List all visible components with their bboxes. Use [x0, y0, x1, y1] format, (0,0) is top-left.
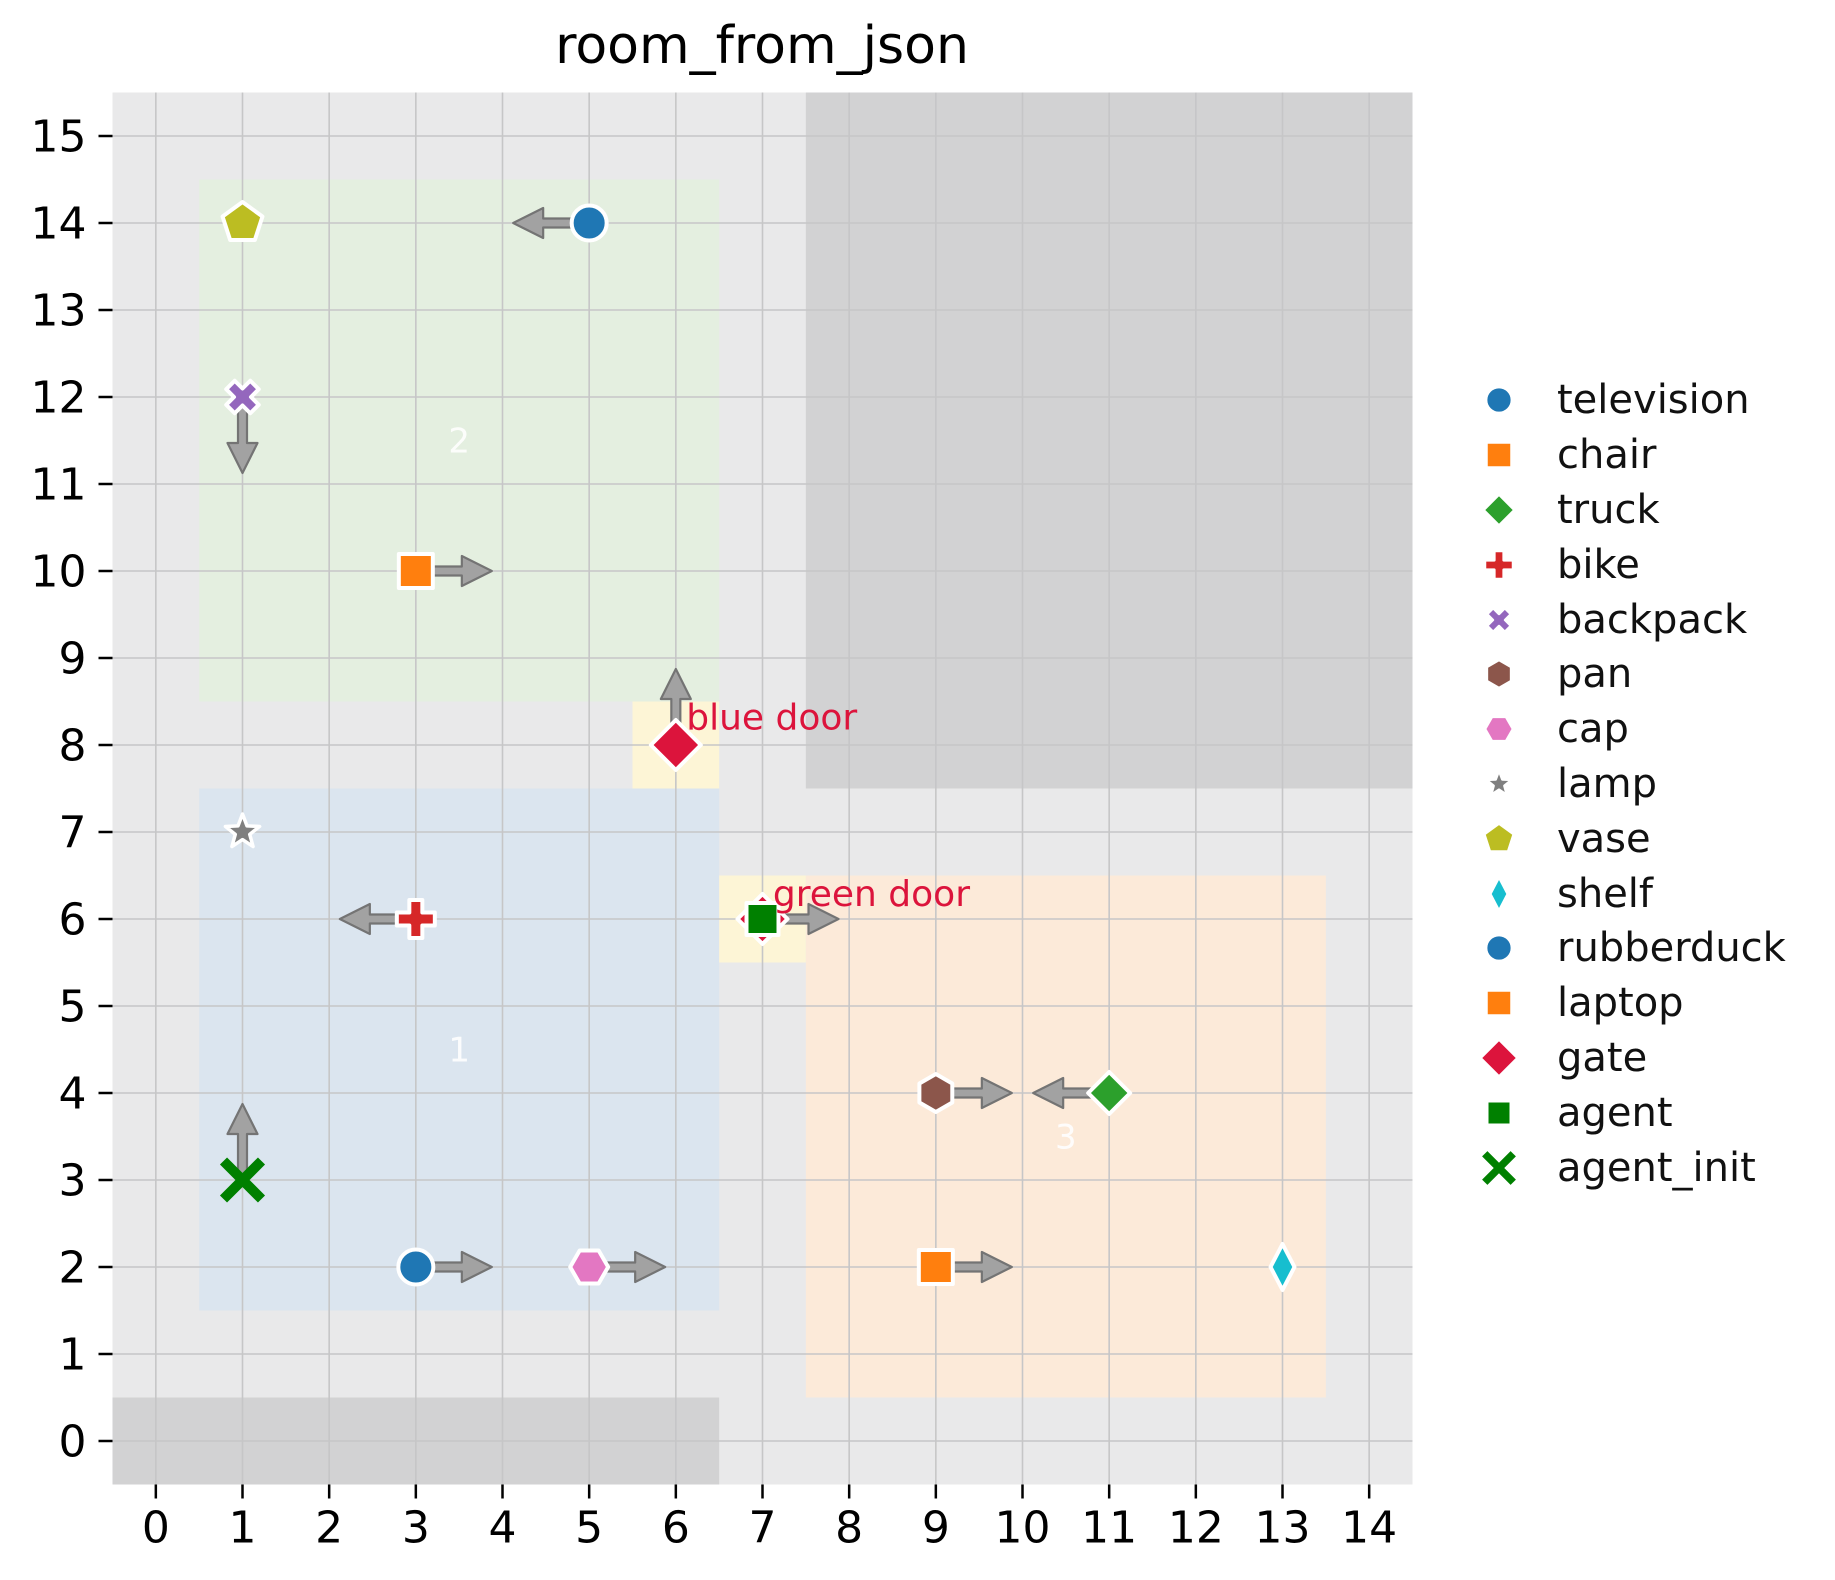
legend-marker-vase	[1484, 823, 1514, 851]
legend-marker-truck	[1483, 494, 1515, 526]
legend-item-chair: chair	[1462, 428, 1786, 483]
legend-marker-laptop	[1486, 990, 1512, 1016]
legend-item-label: cap	[1557, 709, 1629, 749]
svg-text:3: 3	[402, 1503, 430, 1554]
svg-text:11: 11	[1081, 1503, 1137, 1554]
legend-item-television: television	[1462, 373, 1786, 428]
legend-marker-agent-icon	[1462, 1088, 1537, 1138]
svg-text:4: 4	[489, 1503, 517, 1554]
legend-item-label: lamp	[1557, 764, 1657, 804]
svg-text:2: 2	[59, 1242, 87, 1293]
svg-text:4: 4	[59, 1068, 87, 1119]
legend-marker-cap	[1485, 717, 1514, 742]
legend-item-agent: agent	[1462, 1085, 1786, 1140]
legend-item-pan: pan	[1462, 647, 1786, 702]
legend-marker-gate	[1480, 1039, 1518, 1077]
legend-item-label: truck	[1557, 490, 1660, 530]
svg-text:5: 5	[575, 1503, 603, 1554]
legend-item-label: chair	[1557, 435, 1656, 475]
legend-item-laptop: laptop	[1462, 976, 1786, 1031]
marker-rubberduck	[398, 1250, 433, 1285]
legend-item-lamp: lamp	[1462, 757, 1786, 812]
legend-marker-pan	[1487, 660, 1512, 689]
legend-item-shelf: shelf	[1462, 866, 1786, 921]
svg-text:13: 13	[31, 285, 87, 336]
legend-marker-lamp	[1486, 770, 1512, 794]
legend-marker-agent_init-icon	[1462, 1143, 1537, 1193]
legend-item-label: laptop	[1557, 983, 1684, 1023]
legend-item-label: backpack	[1557, 600, 1747, 640]
room-3-label: 3	[1055, 1117, 1077, 1157]
legend-item-agent_init: agent_init	[1462, 1140, 1786, 1195]
svg-text:6: 6	[59, 894, 87, 945]
legend-item-label: pan	[1557, 654, 1632, 694]
legend-marker-chair-icon	[1462, 430, 1537, 480]
legend-item-label: agent	[1557, 1093, 1673, 1133]
legend-item-vase: vase	[1462, 811, 1786, 866]
legend-marker-television-icon	[1462, 375, 1537, 425]
svg-text:10: 10	[31, 546, 87, 597]
marker-cap	[570, 1251, 608, 1284]
door-label-1: green door	[773, 874, 970, 915]
legend-marker-bike	[1485, 551, 1514, 580]
room-1-label: 1	[448, 1030, 470, 1070]
legend-marker-pan-icon	[1462, 649, 1537, 699]
svg-text:5: 5	[59, 981, 87, 1032]
legend-item-label: gate	[1557, 1038, 1647, 1078]
svg-text:12: 12	[31, 372, 87, 423]
legend-item-backpack: backpack	[1462, 592, 1786, 647]
legend-item-rubberduck: rubberduck	[1462, 921, 1786, 976]
svg-text:3: 3	[59, 1155, 87, 1206]
svg-text:6: 6	[662, 1503, 690, 1554]
legend-marker-laptop-icon	[1462, 978, 1537, 1028]
legend-item-gate: gate	[1462, 1031, 1786, 1086]
room-2-label: 2	[448, 421, 470, 461]
marker-laptop	[919, 1250, 953, 1284]
legend-marker-shelf-icon	[1462, 869, 1537, 919]
legend-item-label: shelf	[1557, 874, 1653, 914]
legend-marker-backpack	[1481, 602, 1517, 638]
marker-television	[572, 206, 607, 241]
door-label-0: blue door	[686, 697, 857, 738]
legend-item-bike: bike	[1462, 537, 1786, 592]
svg-text:14: 14	[31, 198, 87, 249]
legend-marker-gate-icon	[1462, 1033, 1537, 1083]
svg-text:14: 14	[1341, 1503, 1397, 1554]
legend-marker-bike-icon	[1462, 540, 1537, 590]
svg-text:12: 12	[1168, 1503, 1224, 1554]
legend-marker-television	[1486, 387, 1512, 413]
legend-marker-rubberduck-icon	[1462, 923, 1537, 973]
chart-title: room_from_json	[112, 16, 1412, 76]
svg-text:0: 0	[142, 1503, 170, 1554]
legend: televisionchairtruckbikebackpackpancapla…	[1462, 373, 1786, 1195]
legend-item-cap: cap	[1462, 702, 1786, 757]
svg-text:11: 11	[31, 459, 87, 510]
legend-item-label: television	[1557, 380, 1750, 420]
svg-text:13: 13	[1255, 1503, 1311, 1554]
svg-text:8: 8	[835, 1503, 863, 1554]
legend-marker-backpack-icon	[1462, 595, 1537, 645]
legend-marker-shelf	[1490, 876, 1508, 911]
svg-text:0: 0	[59, 1416, 87, 1467]
legend-item-label: bike	[1557, 545, 1640, 585]
marker-chair	[399, 554, 433, 588]
legend-marker-cap-icon	[1462, 704, 1537, 754]
marker-pan	[919, 1074, 952, 1112]
legend-item-label: vase	[1557, 819, 1651, 859]
legend-marker-rubberduck	[1486, 935, 1512, 961]
legend-item-label: agent_init	[1557, 1148, 1756, 1188]
legend-marker-vase-icon	[1462, 814, 1537, 864]
legend-marker-truck-icon	[1462, 485, 1537, 535]
legend-marker-agent	[1487, 1101, 1511, 1125]
legend-item-label: rubberduck	[1557, 928, 1786, 968]
legend-marker-agent_init	[1485, 1153, 1514, 1182]
svg-text:8: 8	[59, 720, 87, 771]
figure: 123blue doorgreen door012345678910111213…	[0, 0, 1835, 1580]
svg-text:2: 2	[315, 1503, 343, 1554]
svg-text:1: 1	[229, 1503, 257, 1554]
legend-marker-lamp-icon	[1462, 759, 1537, 809]
svg-text:10: 10	[995, 1503, 1051, 1554]
svg-text:15: 15	[31, 111, 87, 162]
svg-text:7: 7	[749, 1503, 777, 1554]
svg-text:1: 1	[59, 1329, 87, 1380]
svg-text:9: 9	[922, 1503, 950, 1554]
svg-text:7: 7	[59, 807, 87, 858]
legend-item-truck: truck	[1462, 483, 1786, 538]
svg-text:9: 9	[59, 633, 87, 684]
legend-marker-chair	[1486, 442, 1512, 468]
